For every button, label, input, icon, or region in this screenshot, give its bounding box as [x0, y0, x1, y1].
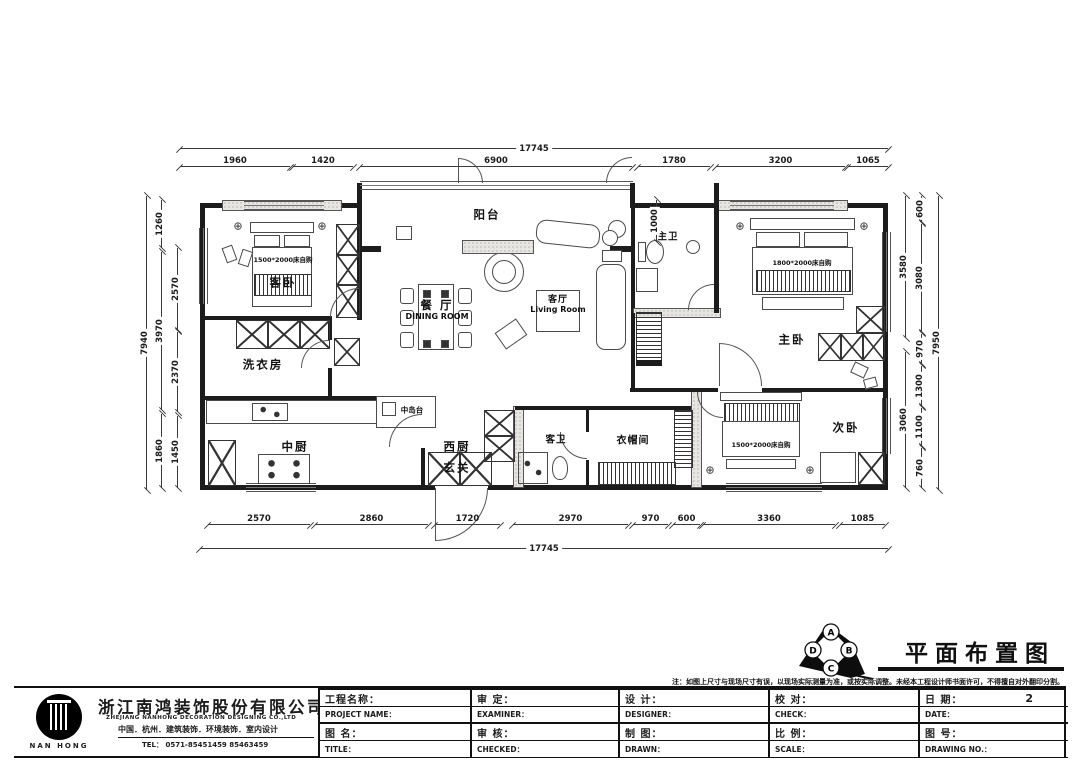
dining-plate-2: [441, 290, 449, 298]
dim-top-1: 1960: [180, 166, 290, 167]
guestbath-vanity: [518, 452, 548, 484]
dim-left-inner-1: 2570: [177, 248, 178, 330]
guest-wardrobe-1: [336, 224, 360, 256]
company-logo-cap: [47, 700, 71, 703]
dim-top-4: 1780: [638, 166, 710, 167]
second-bed-label: 1500*2000床自购: [731, 439, 790, 449]
dim-top-6: 1065: [848, 166, 888, 167]
guest-bed-pillow-left: [254, 235, 280, 247]
master-bed-pillow-left: [756, 232, 800, 247]
field-examiner-cn: 审 定：: [472, 690, 620, 707]
window-guest-left: [199, 228, 208, 304]
field-check-en: CHECK：: [770, 707, 920, 724]
field-checked-cn: 审 核：: [472, 724, 620, 741]
dining-plate-1: [423, 290, 431, 298]
master-bed-blanket: [756, 270, 851, 292]
dim-left-inner-3: 1450: [177, 416, 178, 488]
room-label-second-bedroom: 次卧: [833, 421, 860, 434]
field-title-cn: 图 名：: [320, 724, 472, 741]
drawing-title: 平面布置图: [905, 634, 1055, 668]
dim-masterbath-1000: 1000: [656, 200, 657, 242]
island-cooktop: [382, 402, 396, 416]
masterbath-basin: [686, 240, 700, 254]
room-label-island: 中岛台: [401, 405, 424, 416]
balcony-door-arc: [458, 158, 483, 183]
wall-guestbath-right: [586, 410, 589, 432]
elev-letter-b: B: [846, 647, 853, 657]
field-scale-cn: 比 例：: [770, 724, 920, 741]
master-door-arc: [719, 343, 762, 386]
laundry-washer-1: [236, 320, 268, 349]
cloak-ladder: [674, 410, 693, 468]
window-kitchen-bottom: [246, 483, 316, 492]
company-block: NAN HONG 浙江南鸿装饰股份有限公司 ZHEJIANG NANHONG D…: [14, 688, 316, 758]
field-scale-en: SCALE：: [770, 741, 920, 758]
room-label-guest-bedroom: 客卧: [270, 276, 297, 289]
dining-plate-3: [423, 340, 431, 348]
field-drawing-no-cn: 图 号：: [920, 724, 1068, 741]
field-title-en: TITLE：: [320, 741, 472, 758]
wall-laundry-right-b: [328, 368, 332, 400]
second-nightstand-left: ⊕: [705, 464, 714, 477]
guest-door-arc: [330, 288, 359, 317]
wall-bottom-right: [488, 485, 888, 490]
field-designer-en: DESIGNER：: [620, 707, 770, 724]
balcony-lounge: [535, 219, 601, 250]
living-side-table: [602, 250, 622, 262]
field-drawn-en: DRAWN：: [620, 741, 770, 758]
masterbath-toilet: [646, 240, 664, 264]
master-chair-1: [850, 361, 869, 378]
entry-door-leaf: [435, 488, 436, 541]
drawing-sheet: ⊕ ⊕ 1500*2000床自购: [0, 0, 1080, 762]
dim-right-mid-1: 3580: [905, 196, 906, 338]
company-name-en: ZHEJIANG NANHONG DECORATION DESIGNING CO…: [106, 715, 296, 721]
dim-bottom-total: 17745: [200, 548, 888, 549]
balcony-door-leaf: [458, 158, 459, 183]
bottom-strip: NAN HONG 浙江南鸿装饰股份有限公司 ZHEJIANG NANHONG D…: [14, 688, 1066, 758]
company-services: 中国．杭州．建筑装饰．环境装饰．室内设计: [118, 724, 278, 735]
field-designer-cn: 设 计：: [620, 690, 770, 707]
dim-bottom-2: 2860: [315, 524, 428, 525]
guest-chair-2: [238, 249, 253, 268]
room-label-guest-bath: 客卫: [545, 436, 566, 447]
elev-letter-d: D: [809, 647, 816, 657]
room-label-master-bath: 主卫: [657, 233, 678, 244]
master-nightstand-left: ⊕: [735, 220, 744, 233]
elev-letter-c: C: [828, 665, 835, 675]
master-closet-2: [840, 333, 864, 361]
second-cabinet: [858, 452, 885, 485]
kitchen-fridge: [208, 440, 236, 486]
guest-nightstand-left: ⊕: [233, 220, 242, 233]
room-label-master-bedroom: 主卧: [779, 333, 806, 346]
dim-left-mid-3: 1860: [161, 414, 162, 488]
balcony-planter: [462, 240, 534, 254]
guest-wardrobe-2: [336, 254, 360, 286]
dim-left-total: 7940: [146, 196, 147, 490]
master-bed-pillow-right: [804, 232, 848, 247]
living-armchair: [495, 318, 528, 349]
field-check-cn: 校 对：: [770, 690, 920, 707]
dim-top-2: 1420: [293, 166, 353, 167]
master-closet-1: [818, 333, 842, 361]
company-tel: TEL： 0571-85451459 85463459: [142, 740, 268, 750]
master-closet-3: [862, 333, 885, 361]
company-logo-column-icon: [50, 704, 68, 730]
elevation-symbol: A B C D: [793, 620, 873, 684]
dining-chair-l3: [400, 332, 414, 348]
second-bed-headboard: [720, 392, 802, 401]
master-door-leaf: [719, 343, 720, 386]
master-bed-bench: [762, 297, 844, 310]
window-master-top: [730, 201, 834, 210]
field-date-cn: 日 期：2: [920, 690, 1068, 707]
company-rule: [118, 737, 314, 738]
dim-bottom-6: 600: [673, 524, 700, 525]
dim-right-total: 7950: [938, 196, 939, 490]
date-value: 2: [1025, 692, 1034, 705]
field-examiner-en: EXAMINER：: [472, 707, 620, 724]
wall-kitchen-right-b: [421, 448, 425, 490]
room-label-living: 客厅Living Room: [530, 295, 586, 315]
guest-bed-pillow-right: [284, 235, 310, 247]
masterbath-shower: [636, 268, 658, 292]
room-label-western-kitchen: 西厨: [444, 440, 471, 453]
dim-bottom-4: 2970: [513, 524, 628, 525]
laundry-pillar: [334, 338, 360, 366]
field-drawing-no-en: DRAWING NO.：: [920, 741, 1068, 758]
room-label-chinese-kitchen: 中厨: [282, 440, 309, 453]
dining-chair-r3: [458, 332, 472, 348]
window-second-right: [882, 398, 891, 454]
room-label-foyer: 玄关: [444, 461, 471, 474]
second-desk: [820, 452, 856, 483]
wall-guestbath-top: [515, 406, 693, 410]
room-label-dining: 餐 厅DINING ROOM: [405, 299, 468, 321]
title-block-table: 工程名称： 审 定： 设 计： 校 对： 日 期：2 PROJECT NAME：…: [318, 688, 1066, 758]
kitchen-sink: [252, 403, 288, 421]
shaft-louver: [636, 312, 662, 362]
dim-right-2: 3080: [921, 224, 922, 332]
foyer-shoe-cabinet-1: [484, 410, 515, 437]
dim-bottom-1: 2570: [208, 524, 310, 525]
laundry-washer-2: [268, 320, 300, 349]
elev-letter-a: A: [828, 629, 835, 639]
dim-right-3: 970: [921, 334, 922, 364]
guestbath-toilet: [552, 456, 568, 480]
guest-bed-label: 1500*2000床自购: [253, 254, 312, 264]
window-guest-top: [244, 201, 324, 210]
shaft-cap: [636, 360, 662, 366]
balcony-plant: [602, 230, 618, 246]
dim-right-5: 1100: [921, 408, 922, 446]
living-sofa: [596, 264, 626, 350]
master-bed-headboard: [750, 218, 855, 230]
dim-bottom-7: 3360: [703, 524, 835, 525]
wall-guestbath-right-b: [586, 460, 589, 486]
dim-top-5: 3200: [716, 166, 845, 167]
master-bed-label: 1800*2000床自购: [772, 257, 831, 267]
field-project-name-cn: 工程名称：: [320, 690, 472, 707]
guest-chair-1: [222, 245, 238, 264]
dim-right-6: 760: [921, 448, 922, 488]
dim-bottom-3: 1720: [435, 524, 500, 525]
second-bed-foot: [726, 459, 796, 469]
kitchen-stove: [258, 454, 310, 484]
dim-bottom-8: 1085: [840, 524, 885, 525]
room-label-balcony: 阳台: [474, 208, 501, 221]
wall-balcony-stub-left: [357, 246, 381, 252]
company-logo-text: NAN HONG: [27, 742, 91, 750]
master-side-cabinet: [856, 306, 885, 333]
guest-nightstand-right: ⊕: [317, 220, 326, 233]
dining-plate-4: [441, 340, 449, 348]
floor-plan: ⊕ ⊕ 1500*2000床自购: [0, 0, 1080, 620]
second-nightstand-right: ⊕: [805, 464, 814, 477]
room-label-laundry: 洗衣房: [243, 358, 284, 371]
masterbath-door-arc: [688, 284, 714, 310]
dim-top-total: 17745: [180, 148, 888, 149]
second-bed-blanket: [724, 403, 800, 423]
field-project-name-en: PROJECT NAME：: [320, 707, 472, 724]
dim-top-3: 6900: [360, 166, 632, 167]
field-drawn-cn: 制 图：: [620, 724, 770, 741]
dim-left-mid-2: 3970: [161, 252, 162, 410]
living-round-chair-inner: [492, 260, 516, 284]
dim-left-inner-2: 2370: [177, 332, 178, 412]
drawing-title-underline: [878, 667, 1064, 671]
window-balcony-top: [360, 181, 633, 190]
window-second-bottom: [726, 483, 822, 492]
wall-shaft-left: [631, 313, 635, 388]
dim-right-mid-2: 3060: [905, 352, 906, 488]
dim-right-4: 1300: [921, 366, 922, 406]
field-checked-en: CHECKED：: [472, 741, 620, 758]
master-nightstand-right: ⊕: [859, 220, 868, 233]
dim-right-1: 600: [921, 196, 922, 222]
masterbath-toilet-tank: [638, 242, 646, 262]
guest-bed-headboard: [250, 222, 314, 233]
balcony-mop-sink: [396, 226, 412, 240]
dim-left-mid-1: 1260: [161, 200, 162, 248]
dim-bottom-5: 970: [633, 524, 668, 525]
field-date-en: DATE：: [920, 707, 1068, 724]
room-label-cloakroom: 衣帽间: [617, 435, 650, 447]
wall-masterbath-right: [714, 183, 719, 313]
cloak-dresser: [598, 462, 676, 485]
